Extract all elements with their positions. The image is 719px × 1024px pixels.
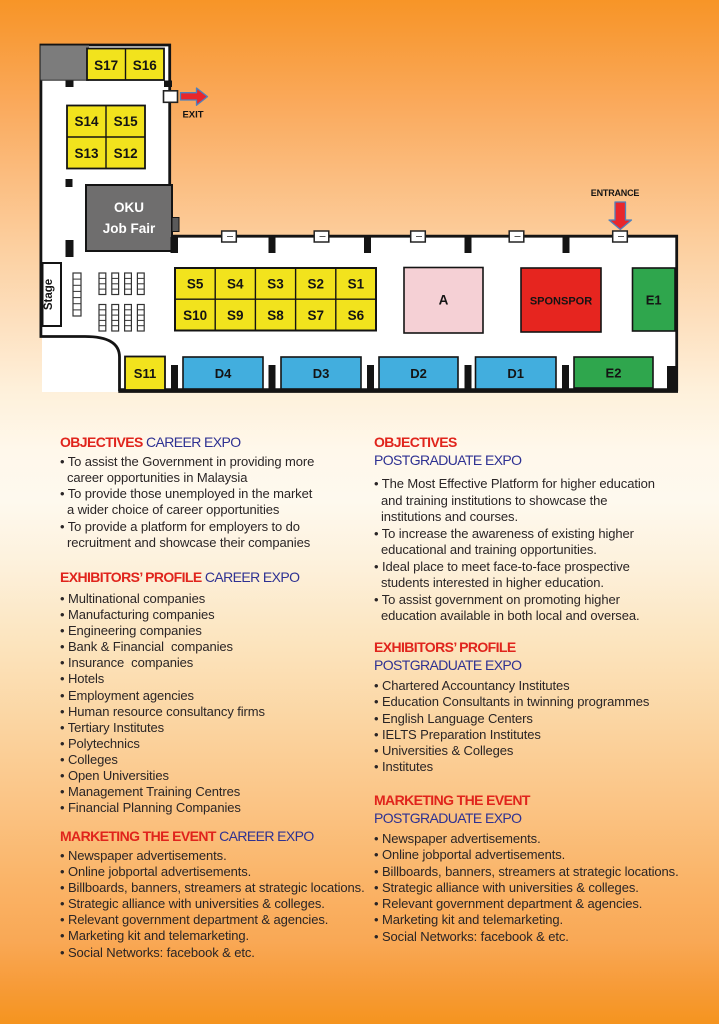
svg-text:S2: S2: [307, 277, 324, 292]
svg-text:ENTRANCE: ENTRANCE: [591, 188, 640, 198]
svg-text:S1: S1: [348, 277, 365, 292]
svg-text:Stage: Stage: [43, 279, 55, 310]
svg-text:A: A: [439, 293, 449, 308]
svg-text:D1: D1: [507, 366, 524, 381]
svg-text:S14: S14: [74, 114, 99, 129]
svg-text:S5: S5: [187, 277, 204, 292]
svg-text:S13: S13: [74, 146, 99, 161]
svg-text:S4: S4: [227, 277, 244, 292]
svg-text:S7: S7: [307, 308, 324, 323]
svg-text:S6: S6: [348, 308, 365, 323]
svg-text:D4: D4: [215, 366, 232, 381]
svg-text:S16: S16: [133, 58, 158, 73]
svg-text:S9: S9: [227, 308, 244, 323]
svg-text:S15: S15: [114, 114, 139, 129]
svg-text:SPONSPOR: SPONSPOR: [530, 296, 592, 308]
svg-text:D2: D2: [410, 366, 427, 381]
svg-text:Job Fair: Job Fair: [103, 221, 156, 236]
svg-text:S8: S8: [267, 308, 284, 323]
svg-text:EXIT: EXIT: [182, 110, 203, 121]
svg-text:E1: E1: [646, 293, 662, 308]
svg-text:S17: S17: [94, 58, 118, 73]
svg-text:S11: S11: [134, 366, 156, 381]
svg-text:E2: E2: [606, 366, 622, 381]
svg-text:S3: S3: [267, 277, 284, 292]
svg-text:S12: S12: [114, 146, 138, 161]
svg-text:D3: D3: [313, 366, 330, 381]
svg-text:S10: S10: [183, 308, 207, 323]
svg-text:OKU: OKU: [114, 200, 144, 215]
